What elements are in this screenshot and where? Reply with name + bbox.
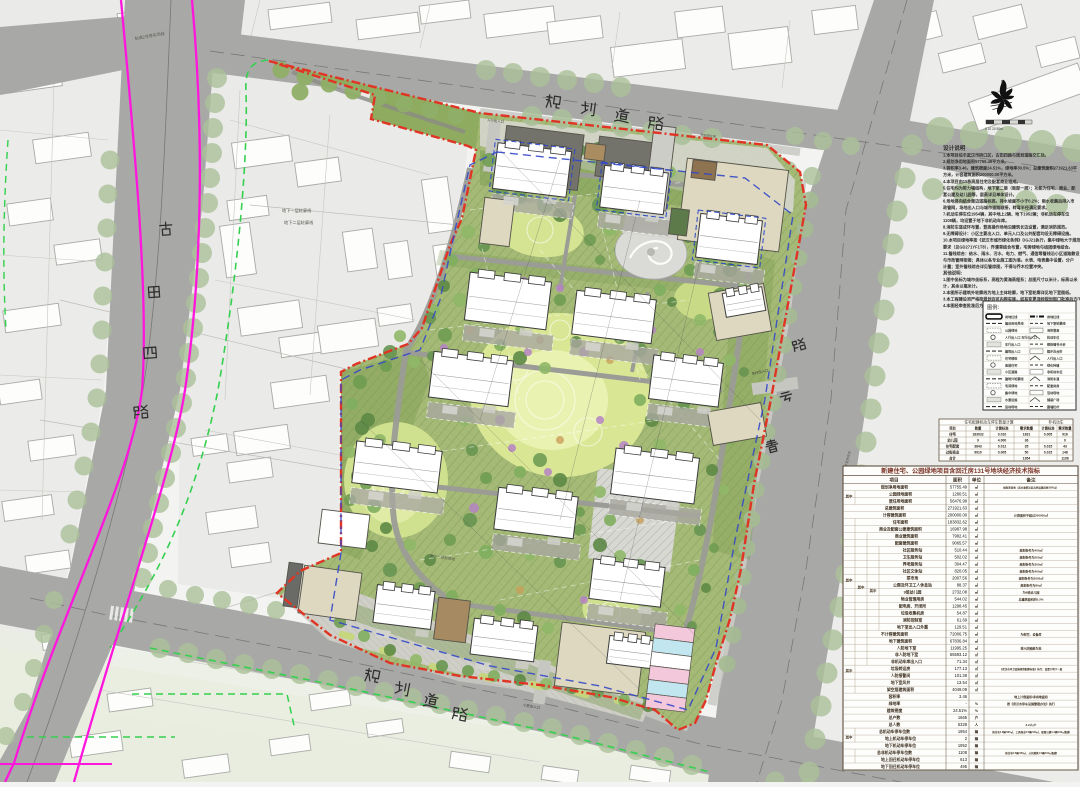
svg-text:地下一层轮廓线: 地下一层轮廓线 (282, 207, 312, 214)
svg-text:人行出入口: 人行出入口 (1046, 355, 1062, 360)
svg-text:2.规划净用地面积57755.49平方米。: 2.规划净用地面积57755.49平方米。 (943, 158, 1009, 164)
svg-text:1280.51: 1280.51 (952, 492, 968, 497)
svg-text:1.本项目位于武汉市硚口区，古田四路与规划道路交汇处。: 1.本项目位于武汉市硚口区，古田四路与规划道路交汇处。 (943, 152, 1049, 158)
svg-text:271921.63: 271921.63 (948, 505, 968, 510)
svg-text:按住宅1.0辆/100㎡、工具商业0.5辆/100㎡、配套公: 按住宅1.0辆/100㎡、工具商业0.5辆/100㎡、配套公建1.2辆/100㎡… (991, 730, 1070, 734)
svg-text:地下机动车停车位: 地下机动车停车位 (885, 743, 916, 748)
svg-text:820.05: 820.05 (954, 568, 967, 573)
svg-text:与市政管网衔接；具体以各专业施工图为准。水表、电表集中设置，: 与市政管网衔接；具体以各专业施工图为准。水表、电表集中设置，分户 (943, 256, 1074, 262)
svg-text:《武汉市环卫设施规划配建标准》执行，设置于地下一层: 《武汉市环卫设施规划配建标准》执行，设置于地下一层 (1000, 667, 1063, 671)
svg-text:规划条件为500㎡: 规划条件为500㎡ (1018, 554, 1042, 559)
svg-text:配电房、开闭所: 配电房、开闭所 (899, 603, 926, 608)
svg-text:55593.12: 55593.12 (950, 652, 968, 657)
svg-text:其中: 其中 (857, 584, 865, 589)
svg-text:按《武汉市停车设施管理办法》执行: 按《武汉市停车设施管理办法》执行 (1007, 701, 1055, 706)
svg-text:61.69: 61.69 (957, 617, 968, 622)
svg-text:规划条件为400㎡: 规划条件为400㎡ (1018, 547, 1042, 552)
svg-text:活动场地: 活动场地 (1047, 390, 1060, 395)
svg-text:其他说明:: 其他说明: (943, 270, 963, 277)
svg-text:3.46: 3.46 (959, 694, 968, 699)
svg-text:其中: 其中 (845, 494, 853, 499)
svg-text:5.住宅均为剪力墙结构，地下室二层（局部一层）；功能为住宅、: 5.住宅均为剪力墙结构，地下室二层（局部一层）；功能为住宅、商业、配 (943, 184, 1076, 190)
svg-text:套公建及幼儿园等，层高详见单体设计。: 套公建及幼儿园等，层高详见单体设计。 (943, 191, 1017, 197)
svg-text:72006.75: 72006.75 (950, 631, 968, 636)
svg-text:图例：: 图例： (987, 303, 1003, 311)
svg-text:过街商业: 过街商业 (946, 449, 960, 454)
svg-text:需求数量: 需求数量 (1058, 425, 1072, 430)
svg-text:3843: 3843 (974, 444, 982, 448)
svg-text:规划条件为80㎡: 规划条件为80㎡ (1019, 582, 1041, 587)
svg-text:规划条件为400㎡: 规划条件为400㎡ (1018, 568, 1042, 573)
svg-text:7982.41: 7982.41 (952, 533, 968, 538)
svg-text:车行出入口: 车行出入口 (1005, 341, 1020, 346)
svg-text:面积: 面积 (953, 476, 963, 483)
svg-text:502.02: 502.02 (954, 554, 967, 559)
svg-text:11.管线综合：给水、雨水、污水、电力、燃气、通信等管线沿小: 11.管线综合：给水、雨水、污水、电力、燃气、通信等管线沿小区道路敷设， (943, 250, 1080, 256)
svg-text:9: 9 (977, 438, 979, 442)
svg-text:建筑出入口: 建筑出入口 (1005, 348, 1020, 353)
svg-text:1665: 1665 (958, 715, 968, 720)
svg-text:16987.98: 16987.98 (950, 526, 968, 531)
svg-text:为9班幼儿园: 为9班幼儿园 (1023, 589, 1040, 594)
svg-text:住宅楼栋: 住宅楼栋 (1005, 355, 1018, 360)
svg-text:1954: 1954 (958, 729, 968, 734)
svg-text:总非机动车停车位数: 总非机动车停车位数 (877, 750, 912, 755)
svg-text:方米，计容建筑面积200000.00平方米。: 方米，计容建筑面积200000.00平方米。 (943, 171, 1016, 177)
svg-text:计算标准: 计算标准 (1041, 425, 1055, 430)
svg-text:菜市场: 菜市场 (906, 575, 919, 580)
svg-text:非机动车库出入口: 非机动车库出入口 (891, 659, 922, 664)
svg-text:613: 613 (960, 757, 968, 762)
svg-text:1954: 1954 (1023, 456, 1031, 460)
svg-text:1.图中坐标为城市坐标系，高程为黄海高程系；总图尺寸以米计，: 1.图中坐标为城市坐标系，高程为黄海高程系；总图尺寸以米计，标高以米 (943, 276, 1078, 282)
svg-text:%: % (975, 709, 978, 713)
svg-text:地上计容面积/净用地面积: 地上计容面积/净用地面积 (1014, 694, 1048, 699)
svg-text:4.本项目由15栋高层住宅及配套商业组成。: 4.本项目由15栋高层住宅及配套商业组成。 (943, 178, 1021, 184)
svg-text:地上机动车停车位: 地上机动车停车位 (885, 736, 916, 741)
svg-text:1298.45: 1298.45 (952, 603, 968, 608)
svg-text:用地红线: 用地红线 (1005, 314, 1018, 319)
svg-text:配套建筑面积: 配套建筑面积 (895, 540, 918, 545)
svg-text:88.37: 88.37 (957, 582, 968, 587)
svg-text:总户数: 总户数 (889, 715, 901, 720)
svg-text:57755.49: 57755.49 (950, 485, 968, 490)
svg-text:地下建筑面积: 地下建筑面积 (889, 638, 912, 643)
svg-text:数量: 数量 (974, 425, 982, 430)
svg-text:67836.84: 67836.84 (950, 638, 968, 643)
svg-text:24.51%: 24.51% (953, 708, 967, 713)
svg-text:绿地率: 绿地率 (889, 701, 901, 706)
svg-text:495: 495 (960, 764, 968, 769)
svg-text:计量；室外管线综合详见管综图，不得与乔木位置冲突。: 计量；室外管线综合详见管综图，不得与乔木位置冲突。 (943, 263, 1045, 269)
svg-text:9班幼儿园: 9班幼儿园 (904, 589, 922, 594)
svg-text:0.005: 0.005 (1044, 432, 1053, 436)
svg-text:养老服务站: 养老服务站 (902, 561, 923, 566)
svg-text:总机动车停车位数: 总机动车停车位数 (879, 729, 910, 734)
svg-text:建筑密度: 建筑密度 (887, 708, 903, 713)
svg-text:建设用地界线: 建设用地界线 (1005, 321, 1024, 326)
svg-text:绿化种植: 绿化种植 (1047, 362, 1060, 367)
svg-text:卫生服务站: 卫生服务站 (903, 554, 923, 559)
svg-text:4049.09: 4049.09 (952, 687, 968, 692)
svg-text:物业管理用房: 物业管理用房 (901, 596, 924, 601)
svg-text:不计容建筑面积: 不计容建筑面积 (881, 631, 908, 636)
svg-text:36: 36 (1025, 438, 1029, 442)
svg-text:居住用地面积: 居住用地面积 (889, 499, 912, 504)
svg-text:13.54: 13.54 (957, 680, 968, 685)
svg-text:配套用房: 配套用房 (1047, 383, 1059, 388)
svg-text:人防报警间: 人防报警间 (890, 673, 911, 678)
svg-text:544.02: 544.02 (954, 596, 967, 601)
svg-text:1952: 1952 (958, 743, 968, 748)
svg-text:177.13: 177.13 (954, 666, 967, 671)
svg-text:商业建筑面积: 商业建筑面积 (895, 533, 918, 538)
svg-text:0.012: 0.012 (998, 444, 1007, 448)
svg-text:公园绿地: 公园绿地 (1005, 328, 1018, 333)
svg-text:规划净用地（其中涵养社区共享设施用地1600㎡）: 规划净用地（其中涵养社区共享设施用地1600㎡） (1002, 486, 1059, 490)
svg-text:其中: 其中 (845, 668, 853, 673)
svg-text:要求（见GD271YF1T8），乔灌草结合布置，宅旁绿地与组: 要求（见GD271YF1T8），乔灌草结合布置，宅旁绿地与组团绿地结合。 (943, 243, 1073, 249)
svg-text:地下二层轮廓线: 地下二层轮廓线 (284, 219, 314, 226)
svg-text:消防控制室: 消防控制室 (903, 617, 923, 622)
svg-text:住宅配套: 住宅配套 (946, 443, 960, 448)
svg-text:消防登高: 消防登高 (1047, 328, 1059, 333)
svg-text:宅间绿地: 宅间绿地 (1005, 383, 1018, 388)
svg-text:56476.98: 56476.98 (950, 499, 968, 504)
svg-text:消防车道: 消防车道 (1047, 376, 1060, 381)
svg-text:计算标准: 计算标准 (995, 425, 1009, 430)
svg-text:设计说明: 设计说明 (943, 144, 966, 152)
svg-text:非机动车位: 非机动车位 (1047, 369, 1063, 374)
svg-text:规划净用地面积: 规划净用地面积 (880, 485, 908, 490)
svg-text:架空层建筑面积: 架空层建筑面积 (886, 687, 914, 692)
svg-text:其中: 其中 (845, 735, 853, 740)
svg-text:0: 0 (1064, 438, 1066, 442)
svg-text:总人数: 总人数 (889, 722, 901, 727)
svg-text:0.015: 0.015 (1044, 450, 1053, 454)
svg-text:35: 35 (1025, 444, 1029, 448)
svg-text:71.34: 71.34 (957, 659, 968, 664)
svg-text:9.无障碍设计：小区主要出入口、单元入口及公共配套均设无障碍: 9.无障碍设计：小区主要出入口、单元入口及公共配套均设无障碍设施。 (943, 230, 1073, 236)
svg-text:用地红线: 用地红线 (1047, 314, 1060, 319)
svg-text:楼栋编号分析: 楼栋编号分析 (1047, 341, 1066, 346)
svg-text:1108: 1108 (958, 750, 968, 755)
svg-text:住宅: 住宅 (949, 431, 956, 436)
svg-text:垃圾转运房: 垃圾转运房 (891, 666, 911, 671)
svg-text:43: 43 (1063, 444, 1067, 448)
svg-text:50: 50 (1025, 450, 1029, 454)
svg-text:0.015: 0.015 (1044, 444, 1053, 448)
svg-text:0 10 20 50m: 0 10 20 50m (985, 127, 1003, 131)
svg-text:3.容积率3.46，建筑密度24.51%，绿地率30.5%；: 3.容积率3.46，建筑密度24.51%，绿地率30.5%；总建筑面积27192… (943, 165, 1077, 171)
svg-text:项目: 项目 (889, 476, 898, 483)
svg-text:1108: 1108 (1061, 456, 1068, 460)
svg-text:非机动车: 非机动车 (1048, 420, 1063, 425)
svg-text:地下室轮廓线: 地下室轮廓线 (1047, 321, 1066, 326)
svg-text:计，其余以毫米计。: 计，其余以毫米计。 (943, 283, 980, 289)
svg-text:踏步及台阶: 踏步及台阶 (1047, 348, 1063, 353)
svg-text:1108辆，均设置于地下非机动车库。: 1108辆，均设置于地下非机动车库。 (943, 217, 1009, 223)
svg-text:200000.00: 200000.00 (948, 512, 968, 517)
svg-text:2.本图所示建筑外轮廓线为地上主体轮廓，地下室轮廓详见地下室: 2.本图所示建筑外轮廓线为地上主体轮廓，地下室轮廓详见地下室图纸。 (943, 289, 1073, 295)
svg-text:备注: 备注 (1025, 476, 1036, 483)
svg-text:垃圾收集机房: 垃圾收集机房 (901, 610, 924, 615)
svg-text:3.2人/户: 3.2人/户 (1025, 722, 1036, 727)
svg-text:按人防图纸为准: 按人防图纸为准 (1020, 645, 1041, 650)
svg-text:101.38: 101.38 (954, 673, 967, 678)
svg-text:2007.56: 2007.56 (952, 575, 968, 580)
svg-text:幼儿园: 幼儿园 (947, 437, 958, 442)
svg-text:住宅配建机动车停车数量计算: 住宅配建机动车停车数量计算 (964, 420, 1014, 425)
svg-text:围墙栏杆: 围墙栏杆 (1047, 404, 1060, 409)
svg-text:人防地下室: 人防地下室 (896, 645, 917, 650)
svg-text:计容面积不超过200000㎡: 计容面积不超过200000㎡ (1014, 512, 1048, 517)
svg-text:7.机动车停车位1954辆，其中地上2辆、地下1952辆；非: 7.机动车停车位1954辆，其中地上2辆、地下1952辆；非机动车停车位 (943, 211, 1069, 217)
svg-text:铺装广场: 铺装广场 (1047, 397, 1059, 402)
svg-text:规划条件为2000㎡: 规划条件为2000㎡ (1018, 575, 1044, 580)
svg-text:6.场地竖向结合周边道路标高，排水坡度不小于0.2%；雨水收: 6.场地竖向结合周边道路标高，排水坡度不小于0.2%；雨水收集后排入市 (943, 197, 1074, 203)
svg-text:人: 人 (974, 722, 979, 727)
svg-text:0.010: 0.010 (998, 432, 1007, 436)
svg-text:总建筑面积的0.2%: 总建筑面积的0.2% (1019, 596, 1044, 601)
svg-text:合计: 合计 (948, 455, 956, 460)
svg-text:183832.62: 183832.62 (948, 519, 968, 524)
svg-text:运动场地: 运动场地 (1005, 404, 1018, 409)
svg-text:304.47: 304.47 (954, 561, 967, 566)
svg-text:社区文体站: 社区文体站 (902, 568, 923, 573)
svg-text:总建筑面积: 总建筑面积 (885, 505, 905, 510)
svg-text:其中: 其中 (845, 577, 853, 582)
svg-text:0.005: 0.005 (998, 450, 1007, 454)
svg-text:户: 户 (974, 715, 978, 720)
svg-text:为架空、设备房: 为架空、设备房 (1020, 631, 1041, 636)
svg-text:地下室风井: 地下室风井 (891, 680, 911, 685)
svg-text:8.消防车道成环布置，登高操作场地沿建筑长边设置，满足消防规: 8.消防车道成环布置，登高操作场地沿建筑长边设置，满足消防规范。 (943, 224, 1069, 230)
svg-text:单位: 单位 (972, 476, 982, 483)
svg-text:地下回迁机动车停车位: 地下回迁机动车停车位 (881, 764, 920, 769)
svg-text:非人防地下室: 非人防地下室 (895, 652, 918, 657)
svg-text:小区道路: 小区道路 (1005, 369, 1018, 374)
svg-text:N: N (1001, 79, 1004, 84)
svg-text:183032: 183032 (972, 432, 983, 436)
svg-text:148: 148 (1062, 450, 1068, 454)
svg-text:公园绿地面积: 公园绿地面积 (889, 492, 912, 497)
svg-text:容积率: 容积率 (888, 694, 901, 699)
svg-text:916: 916 (1062, 432, 1068, 436)
svg-text:1831: 1831 (1023, 432, 1031, 436)
svg-text:计容建筑面积: 计容建筑面积 (883, 512, 906, 517)
svg-text:集中绿地: 集中绿地 (1004, 390, 1018, 395)
svg-text:建筑外轮廓线: 建筑外轮廓线 (1005, 376, 1024, 381)
svg-text:政管网，场地出入口与城市道路顺接，转弯半径满足要求。: 政管网，场地出入口与城市道路顺接，转弯半径满足要求。 (943, 204, 1049, 210)
svg-text:5328: 5328 (958, 722, 968, 727)
svg-text:水景设施: 水景设施 (1004, 397, 1018, 402)
svg-text:地下室出入口外露: 地下室出入口外露 (897, 624, 928, 629)
svg-text:人行出入口 车行出入口: 人行出入口 车行出入口 (1004, 335, 1037, 340)
svg-text:住宅面积: 住宅面积 (892, 519, 909, 524)
svg-text:54.87: 54.87 (957, 610, 968, 615)
svg-text:地上回迁机动车停车位: 地上回迁机动车停车位 (881, 757, 920, 762)
svg-text:2732.08: 2732.08 (952, 589, 968, 594)
svg-text:11995.25: 11995.25 (950, 645, 967, 650)
svg-text:需求数量: 需求数量 (1020, 425, 1034, 430)
svg-text:高层住宅: 高层住宅 (1005, 362, 1017, 367)
svg-text:规划条件为300㎡: 规划条件为300㎡ (1018, 561, 1042, 566)
svg-text:9910: 9910 (974, 450, 982, 454)
svg-text:公厕及环卫工人休息站: 公厕及环卫工人休息站 (893, 582, 932, 587)
svg-text:9065.57: 9065.57 (952, 540, 968, 545)
svg-text:10.本项目绿地率按《武汉市城市绿化条例》DGJ21执行，集: 10.本项目绿地率按《武汉市城市绿化条例》DGJ21执行，集中绿地大于规范 (943, 237, 1080, 243)
svg-text:商业及配套公建建筑面积: 商业及配套公建建筑面积 (879, 526, 922, 531)
svg-text:项目: 项目 (949, 425, 956, 430)
svg-text:按住宅0.5辆/100㎡、公共建筑1.5辆/100㎡配建: 按住宅0.5辆/100㎡、公共建筑1.5辆/100㎡配建 (1004, 751, 1057, 755)
svg-text:社区服务站: 社区服务站 (902, 547, 923, 552)
svg-text:机动车位: 机动车位 (1047, 335, 1060, 340)
svg-text:其中: 其中 (869, 588, 877, 593)
svg-text:4.000: 4.000 (998, 438, 1007, 442)
svg-text:新建住宅、公园绿地项目含回迁房131号地块经济技术指标: 新建住宅、公园绿地项目含回迁房131号地块经济技术指标 (881, 467, 1041, 475)
svg-text:129.51: 129.51 (954, 624, 967, 629)
svg-text:510.44: 510.44 (954, 547, 967, 552)
svg-text:%: % (975, 702, 978, 706)
